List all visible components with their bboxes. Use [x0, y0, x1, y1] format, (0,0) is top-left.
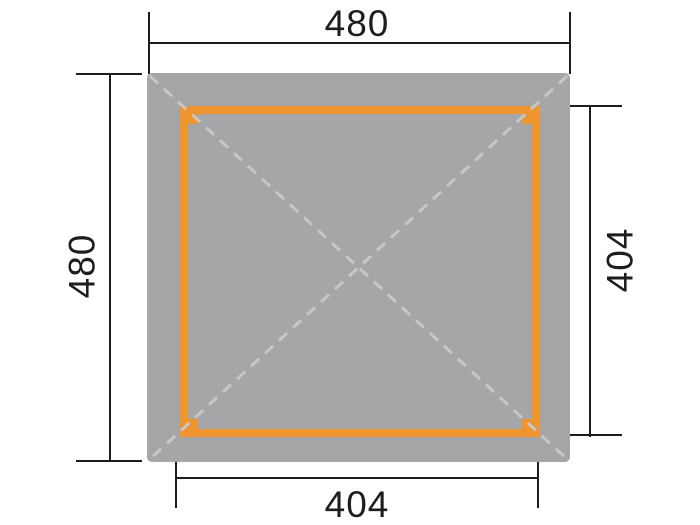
dimension-line-top	[149, 42, 570, 44]
dimension-label-bottom: 404	[325, 486, 390, 523]
roof-outline	[147, 73, 570, 462]
extension-line-top-right	[569, 12, 571, 74]
dimension-label-left: 480	[64, 234, 101, 299]
dimension-line-left	[109, 74, 111, 462]
dimension-line-right	[589, 106, 591, 437]
dimension-drawing: 480 480 404 404	[0, 0, 700, 525]
extension-line-top-left	[148, 12, 150, 74]
dimension-label-top: 480	[325, 5, 390, 42]
extension-line-left-bottom	[76, 460, 142, 462]
diagonal-cross	[147, 73, 570, 462]
dimension-line-bottom	[176, 477, 539, 479]
dimension-label-right: 404	[602, 228, 639, 293]
extension-line-left-top	[76, 73, 142, 75]
